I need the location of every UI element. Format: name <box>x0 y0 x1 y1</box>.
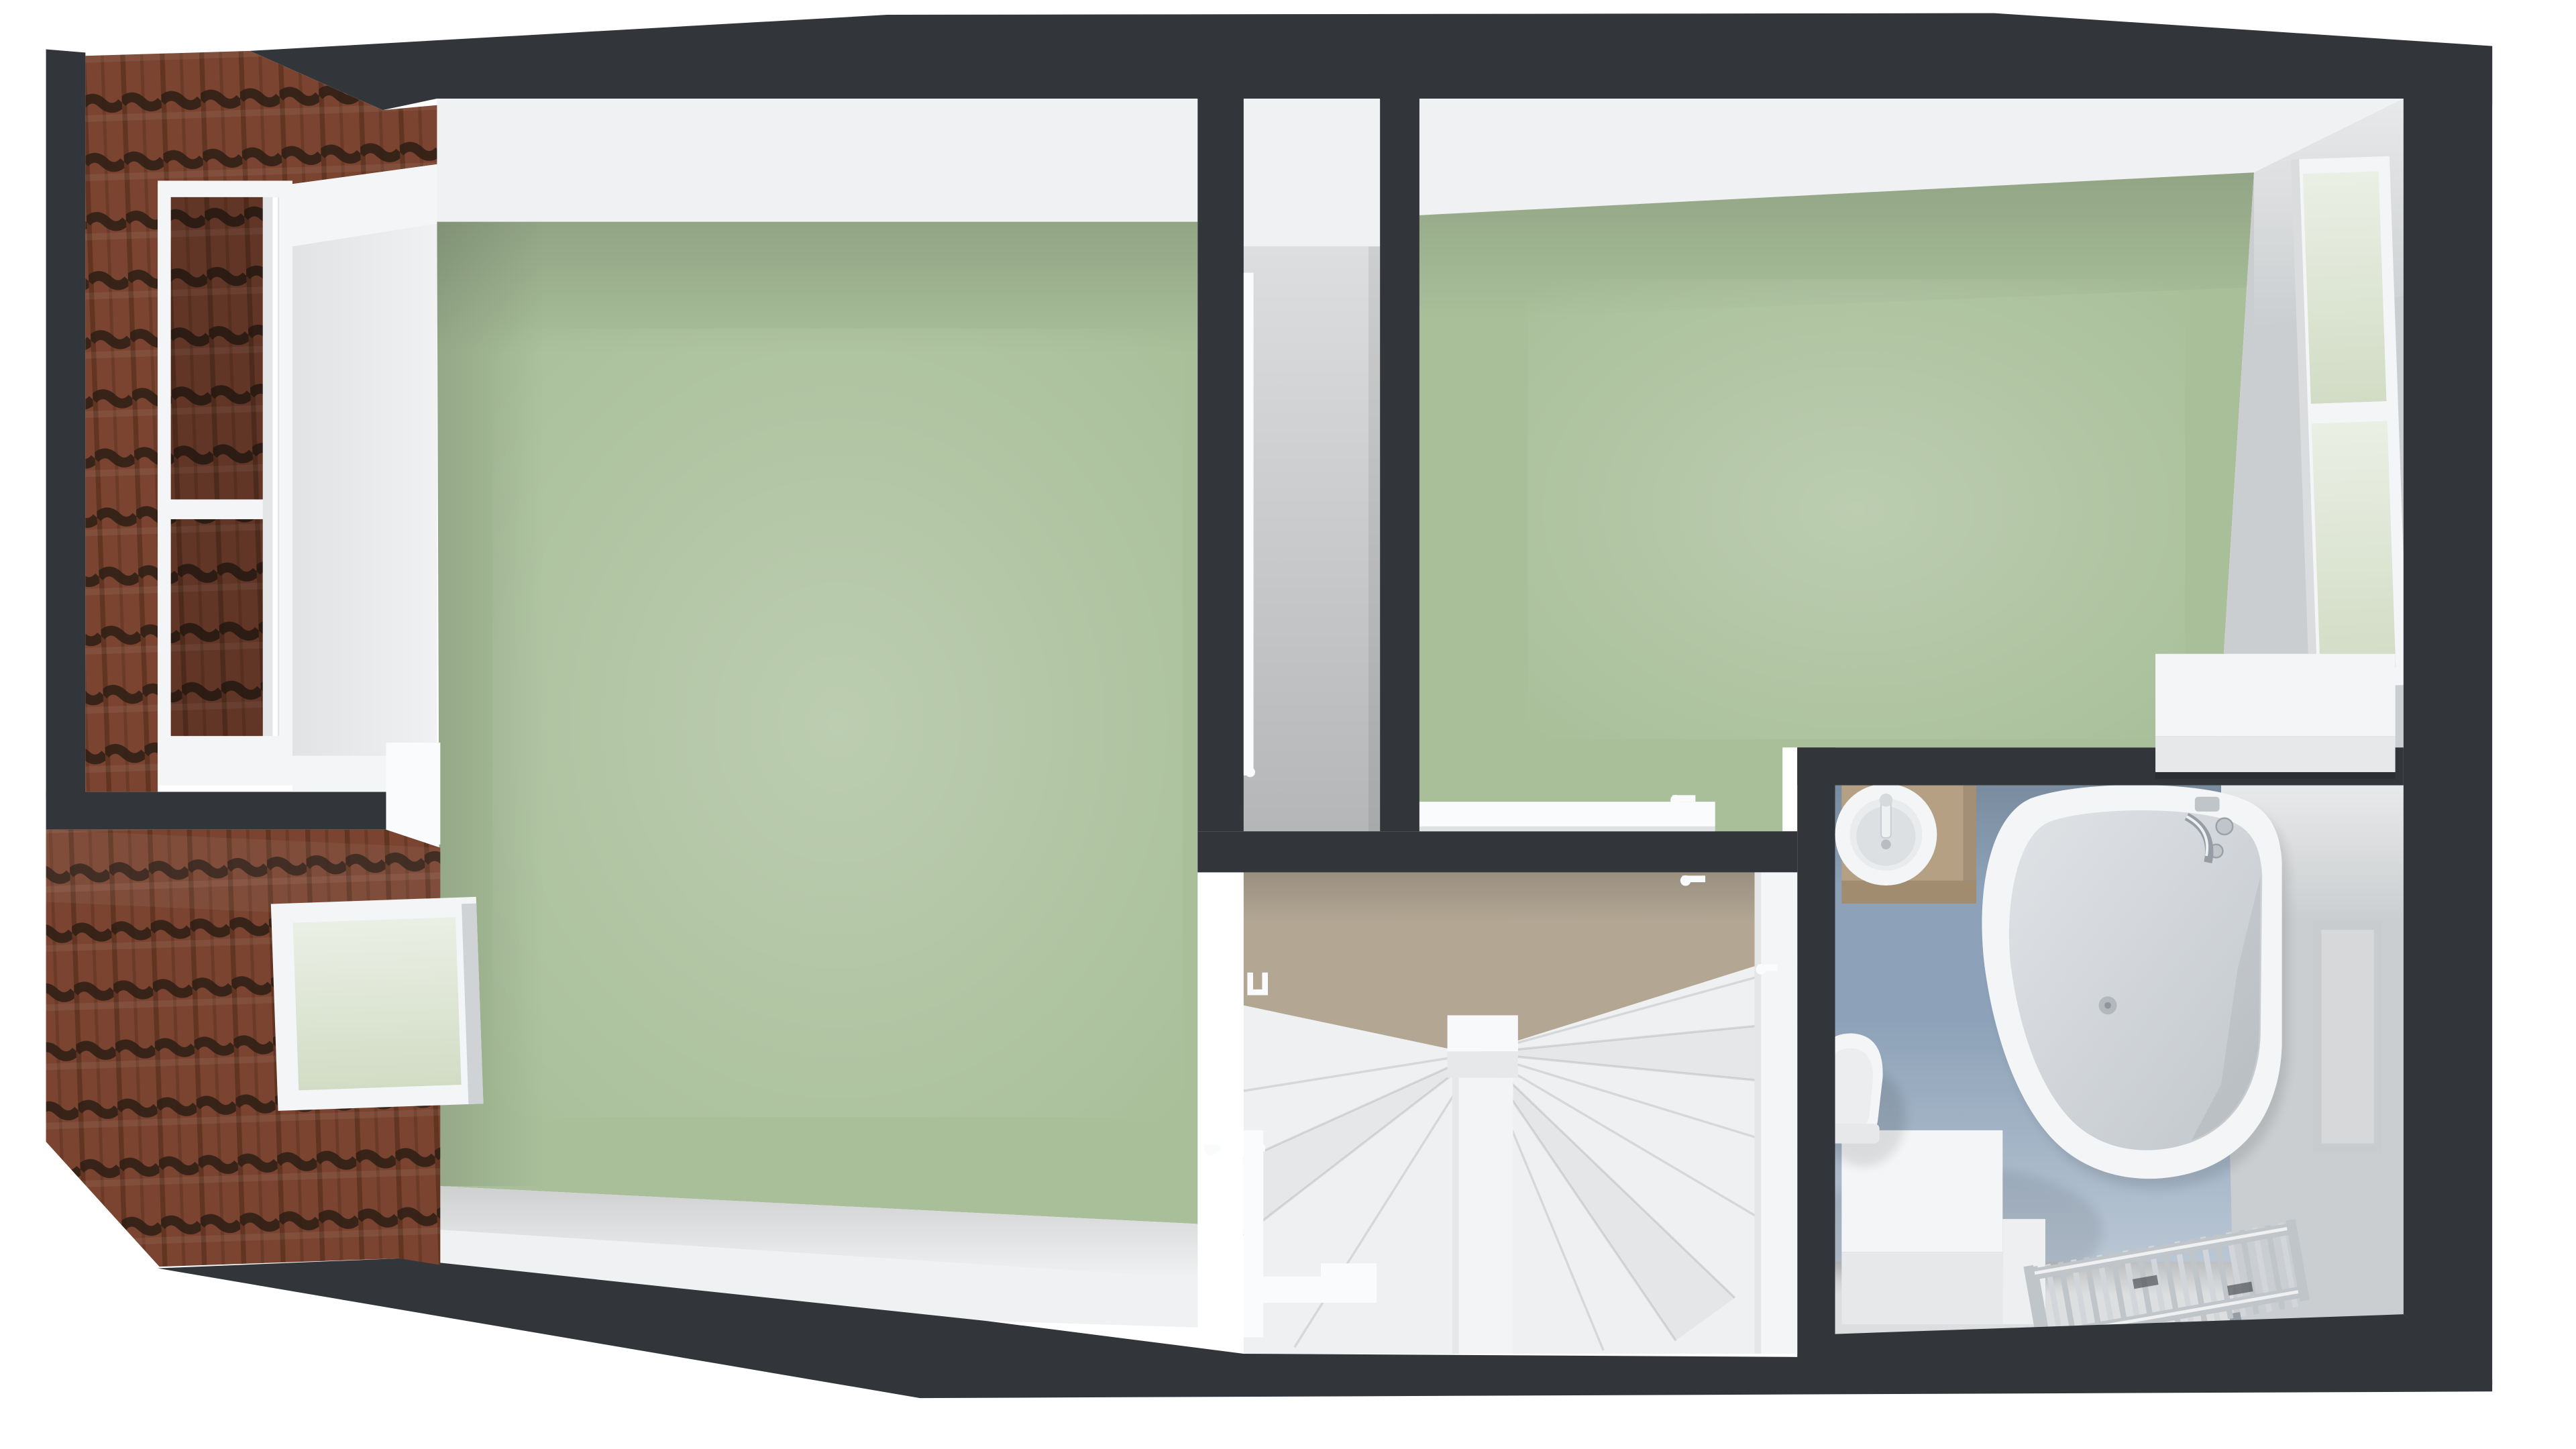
bathtub-drain-center <box>2104 1002 2111 1009</box>
window-east <box>2291 156 2408 688</box>
stair-newel-post-edge <box>1452 1078 1459 1354</box>
corridor-door-leaf <box>1244 273 1254 775</box>
washbasin-drain <box>1881 839 1891 849</box>
wall-landing-north <box>1197 831 1797 872</box>
dormer-sill-beam <box>292 756 386 792</box>
bathroom-door-leaf-edge <box>1755 872 1762 1354</box>
washbasin-vanity-front <box>1841 881 1976 904</box>
corridor-light <box>1244 246 1380 831</box>
roof-window-skylight <box>271 897 484 1111</box>
floor-plan-3d-render <box>0 0 2576 1449</box>
dormer-window-casement-edge <box>273 197 278 736</box>
bedroom-right-door-handle <box>1670 795 1681 806</box>
dormer-pane-upper-tint <box>171 197 263 500</box>
bathroom-door-handle <box>1756 964 1766 975</box>
cabinet-top <box>2155 654 2396 736</box>
washbasin-vanity-edge-shade <box>1964 786 1977 881</box>
bedroom-left <box>402 94 1197 1328</box>
bathroom-wall-niche-inner <box>2321 930 2373 1143</box>
landing-top-shadow <box>1244 872 1797 923</box>
platform-front <box>1841 1252 2002 1324</box>
bedroom-left-north-wall-face <box>437 94 1197 222</box>
roof-edge-middle <box>46 792 386 829</box>
stair-newel-front <box>1448 1051 1518 1077</box>
window-east-glass-sheen2 <box>2312 421 2396 669</box>
bedroom-left-light-glow <box>493 329 1183 1118</box>
wall-landing-bathroom <box>1797 747 1835 1357</box>
landing <box>1244 872 1797 1354</box>
closet-corridor <box>1244 95 1380 831</box>
washbasin-faucet-knob <box>1880 794 1893 807</box>
dormer-window <box>158 180 292 785</box>
window-east-glass-sheen <box>2303 171 2387 404</box>
bedroom-left-door-leaf <box>1244 1130 1263 1338</box>
stair-handrail <box>1247 1277 1377 1303</box>
cabinet <box>2155 654 2396 779</box>
wall-corridor-east <box>1380 94 1419 832</box>
landing-west-door-handle <box>1250 1144 1261 1156</box>
cabinet-front <box>2155 736 2396 772</box>
bedroom-right-door-leaf-shadow <box>1419 826 1715 831</box>
stair-newel-top <box>1448 1015 1518 1051</box>
dormer-side-wall-shade <box>292 223 437 759</box>
floor-plan-stage <box>0 0 2576 1449</box>
window-east-transom <box>2311 401 2387 423</box>
outer-wall-right <box>2404 46 2492 1385</box>
corridor-door-handle <box>1245 767 1255 777</box>
cabinet-under-shadow <box>2155 772 2396 779</box>
bedroom-left-door-handle <box>1205 1144 1217 1156</box>
stair-newel-post <box>1452 1078 1513 1354</box>
corridor-north-wall-face <box>1244 95 1380 246</box>
roof-edge-west <box>46 49 86 798</box>
dormer-pane-lower-tint <box>171 519 263 736</box>
bathroom <box>1807 784 2404 1372</box>
stair-handrail-step <box>1321 1263 1377 1279</box>
corridor-east-shadow <box>1368 246 1380 831</box>
wall-corridor-west <box>1197 94 1244 832</box>
dormer-corner-block <box>386 743 441 845</box>
landing-north-door-handle <box>1680 875 1691 886</box>
skylight-glass-sheen <box>293 917 462 1090</box>
bedroom-right-light-glow <box>1528 279 2186 739</box>
roof <box>46 51 484 1267</box>
